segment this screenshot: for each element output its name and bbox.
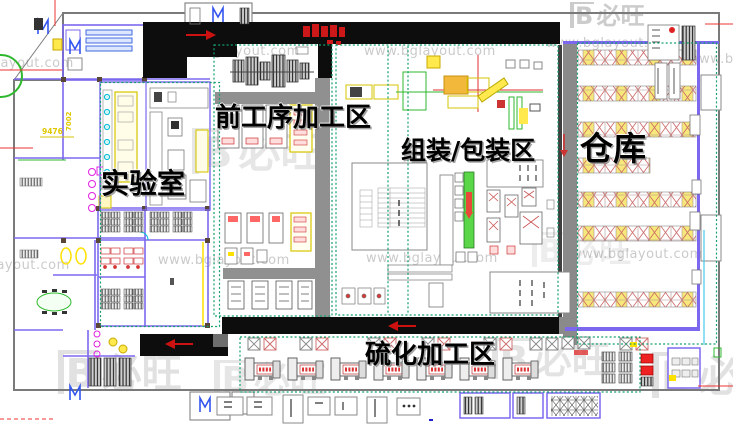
machine-row	[228, 281, 312, 309]
packing-machines	[487, 160, 543, 254]
desk-cluster	[150, 212, 192, 232]
floorplan-screenshot: www.bglayout.com www.bglayout.com www.bg…	[0, 0, 733, 426]
assembly-line	[346, 55, 543, 129]
zone-label-pre-process: 前工序加工区	[215, 105, 371, 131]
dimension-marks: 9476 7002	[18, 111, 74, 160]
green-conveyor	[464, 172, 474, 248]
red-machines	[641, 354, 653, 386]
dimension-height: 7002	[65, 111, 73, 131]
dimension-width: 9476	[42, 127, 63, 136]
machine-row	[225, 248, 267, 264]
zone-label-warehouse: 仓库	[580, 132, 646, 165]
zone-label-vulcanization: 硫化加工区	[365, 342, 495, 368]
desk-cluster	[101, 212, 143, 232]
grid-bubble-icon	[0, 55, 22, 97]
marker-dot-icon	[669, 27, 675, 33]
bottom-rooms	[190, 392, 600, 423]
door-icon	[70, 386, 80, 400]
desk-cluster-red	[101, 248, 143, 269]
assembly-zone	[342, 55, 570, 313]
desk-cluster	[602, 352, 632, 383]
machine-row	[225, 213, 311, 251]
machining-line	[233, 55, 309, 87]
parts-list-table	[360, 188, 425, 227]
side-room	[668, 348, 700, 388]
small-tables	[342, 288, 385, 304]
door-icon	[70, 40, 80, 54]
conference-table	[37, 289, 71, 315]
zone-label-laboratory: 实验室	[101, 170, 185, 198]
zone-label-assembly: 组装/包装区	[401, 138, 535, 163]
desk-cluster	[101, 289, 143, 309]
warehouse-zone	[563, 25, 721, 357]
chair-icon	[53, 39, 62, 50]
